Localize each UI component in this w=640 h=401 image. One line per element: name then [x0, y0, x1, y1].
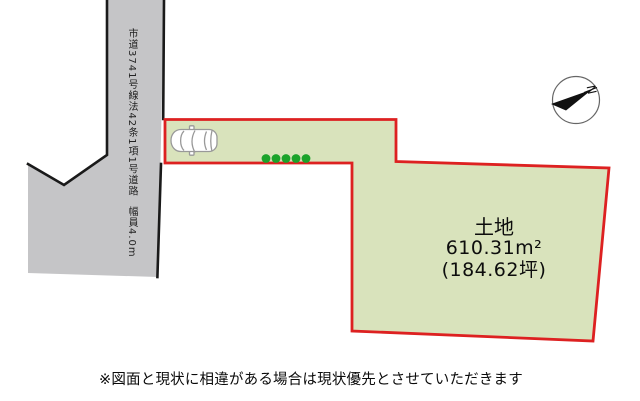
- plant-dot: [292, 154, 301, 163]
- plant-markers: [262, 154, 311, 163]
- lot-plan-diagram: N 市道3741号線法42条1項1号道路幅員4.0m 土地 610.31m² (…: [0, 0, 640, 401]
- parcel-area-sqm: 610.31m²: [394, 238, 594, 259]
- plant-dot: [262, 154, 271, 163]
- parcel-title: 土地: [394, 216, 594, 238]
- disclaimer-text: ※図面と現状に相違がある場合は現状優先とさせていただきます: [99, 368, 523, 389]
- plant-dot: [272, 154, 281, 163]
- road-label: 市道3741号線法42条1項1号道路幅員4.0m: [126, 28, 136, 258]
- parcel-label: 土地 610.31m² (184.62坪): [394, 216, 594, 281]
- plant-dot: [302, 154, 311, 163]
- plan-drawing: N: [0, 0, 640, 401]
- compass: N: [551, 77, 600, 124]
- road-width-text: 幅員4.0m: [126, 197, 137, 258]
- road-name-text: 市道3741号線法42条1項1号道路: [126, 28, 137, 197]
- car-icon: [171, 126, 217, 155]
- plant-dot: [282, 154, 291, 163]
- parcel-area-tsubo: (184.62坪): [394, 260, 594, 281]
- road-shape: [28, 0, 164, 277]
